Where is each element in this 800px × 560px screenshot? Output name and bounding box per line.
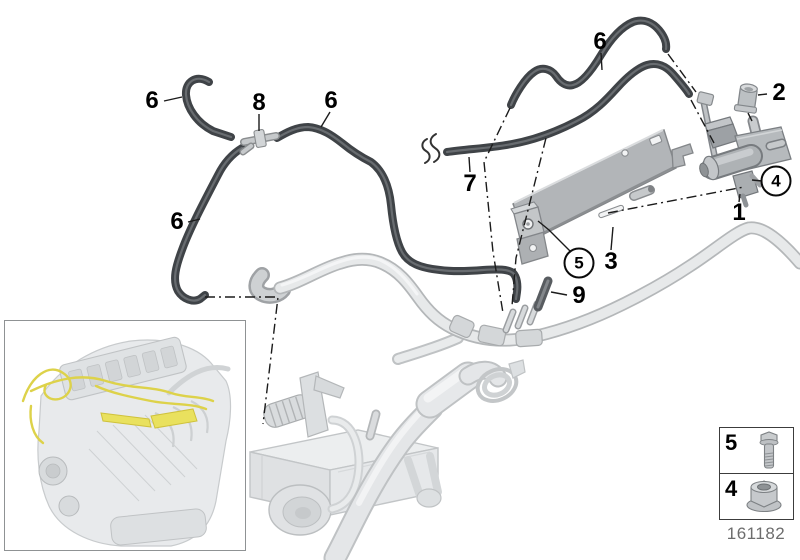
legend-row-nut: 4 [720, 474, 793, 520]
callout-nut-circled: 4 [761, 166, 792, 197]
egr-cooler [250, 372, 438, 535]
sealing-cap-part [734, 83, 760, 114]
callout-sealing-cap: 2 [772, 81, 785, 105]
callout-pressure-converter: 1 [732, 201, 745, 225]
callout-bracket: 3 [604, 250, 617, 274]
t-connector-part [243, 129, 276, 152]
parts-diagram-page: 6 8 6 6 6 2 7 1 3 9 5 4 5 [0, 0, 800, 560]
callout-hose-piece: 9 [572, 284, 585, 308]
document-number: 161182 [727, 524, 785, 544]
hose-top-left [186, 79, 231, 137]
callout-hose-left-long: 6 [170, 210, 183, 234]
engine-thumbnail-art [5, 321, 244, 549]
flange-nut-icon [741, 476, 787, 521]
callout-screw-circled: 5 [564, 248, 595, 279]
mounting-bracket [511, 130, 693, 264]
callout-hose-cut-off: 7 [463, 172, 476, 196]
pipe-stubs [506, 304, 537, 330]
cut-mark-squiggle [422, 134, 439, 163]
fastener-legend: 5 4 [719, 427, 794, 520]
hose-left-long [175, 148, 242, 301]
hex-bolt-icon [751, 430, 787, 477]
legend-row-screw: 5 [720, 428, 793, 474]
hose-piece [538, 281, 548, 307]
legend-nut-number: 4 [725, 476, 737, 502]
callout-t-connector: 8 [252, 91, 265, 115]
callout-hose-top-mid: 6 [324, 89, 337, 113]
callout-hose-top-left: 6 [145, 89, 158, 113]
engine-location-thumbnail [4, 320, 246, 551]
callout-hose-top-right: 6 [593, 30, 606, 54]
legend-screw-number: 5 [725, 430, 737, 456]
